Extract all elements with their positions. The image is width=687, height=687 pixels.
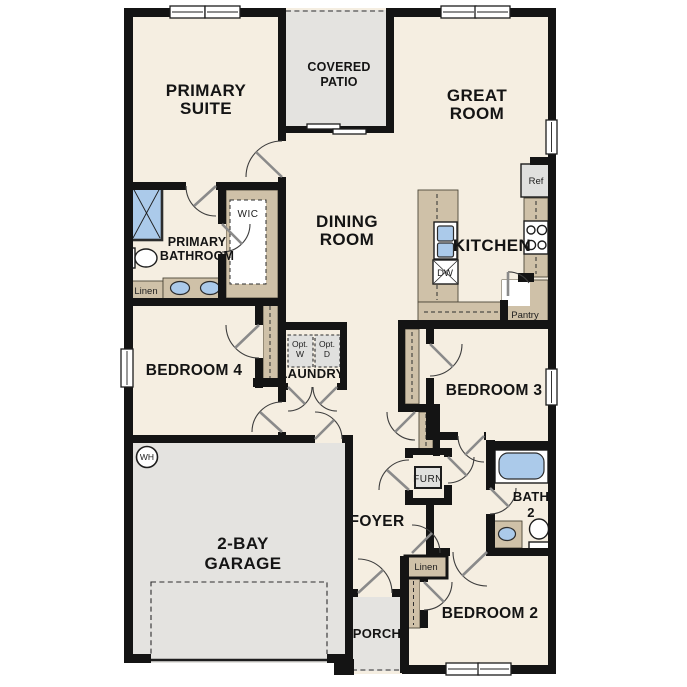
primary-toilet-bowl	[135, 249, 157, 267]
room-label-great-room-2: ROOM	[450, 104, 504, 123]
fixture-label-furnace: FURN	[413, 474, 443, 485]
room-label-covered-patio: COVERED	[307, 60, 370, 74]
room-label-garage-2: GARAGE	[204, 554, 281, 573]
burner-1	[527, 226, 535, 234]
floor-plan-drawing: PRIMARY SUITE COVERED PATIO GREAT ROOM D…	[0, 0, 687, 687]
fixture-label-opt-washer-2: W	[296, 349, 304, 359]
fixture-label-linen-hall: Linen	[414, 562, 437, 573]
wall-segment	[548, 8, 556, 674]
wall-segment	[486, 441, 556, 450]
room-label-foyer: FOYER	[350, 513, 405, 530]
room-label-primary-suite-2: SUITE	[180, 99, 232, 118]
room-label-dining-room: DINING	[316, 212, 378, 231]
wall-segment	[500, 300, 508, 322]
bath2-toilet-bowl	[530, 519, 549, 539]
primary-sink-right	[201, 282, 220, 295]
wall-segment	[124, 8, 133, 663]
opening	[426, 344, 434, 378]
room-label-bedroom3: BEDROOM 3	[446, 382, 543, 399]
fixture-label-linen-primary: Linen	[134, 286, 157, 297]
fixture-label-water-heater: WH	[140, 452, 154, 462]
fixture-label-opt-washer: Opt.	[292, 339, 308, 349]
burner-4	[538, 241, 546, 249]
room-label-garage: 2-BAY	[217, 534, 269, 553]
burner-2	[537, 225, 546, 234]
room-label-wic: WIC	[238, 209, 259, 220]
primary-sink-left	[171, 282, 190, 295]
opening	[255, 325, 263, 358]
room-label-primary-suite: PRIMARY	[166, 81, 247, 100]
room-label-laundry: LAUNDRY	[279, 366, 344, 381]
patio-slider-panel-2	[333, 129, 366, 134]
wall-segment	[334, 659, 354, 675]
room-label-bedroom4: BEDROOM 4	[146, 362, 243, 379]
fixture-label-dishwasher: DW	[437, 268, 453, 279]
fixture-label-opt-dryer: Opt.	[319, 339, 335, 349]
patio-slider-panel-1	[307, 124, 340, 129]
wall-segment	[386, 8, 394, 133]
wall-segment	[398, 320, 556, 329]
wall-segment	[412, 404, 419, 412]
wall-segment	[530, 157, 556, 165]
bathtub	[499, 453, 544, 479]
wall-segment	[426, 548, 556, 556]
fixture-label-opt-dryer-2: D	[324, 349, 330, 359]
fixture-label-refrigerator: Ref	[529, 176, 544, 187]
room-label-dining-room-2: ROOM	[320, 230, 374, 249]
room-label-porch: PORCH	[353, 626, 401, 641]
room-label-bedroom2: BEDROOM 2	[442, 605, 539, 622]
wall-segment	[278, 322, 347, 330]
opening	[278, 141, 286, 177]
kitchen-sink-bowl-bottom	[438, 243, 454, 257]
wall-segment	[426, 498, 434, 556]
garage-door-opening	[151, 654, 327, 663]
opening	[450, 548, 486, 556]
opening	[405, 458, 413, 490]
opening	[278, 402, 286, 432]
room-label-kitchen: KITCHEN	[453, 236, 531, 255]
kitchen-sink-bowl-top	[438, 226, 454, 241]
room-label-bath2: BATH	[513, 489, 549, 504]
opening	[358, 589, 392, 597]
room-label-great-room: GREAT	[447, 86, 507, 105]
room-label-covered-patio-2: PATIO	[320, 75, 357, 89]
wall-segment	[400, 556, 409, 673]
opening	[288, 383, 337, 390]
room-label-bath2-2: 2	[527, 505, 535, 520]
floor-plan-page: PRIMARY SUITE COVERED PATIO GREAT ROOM D…	[0, 0, 687, 687]
wall-segment	[398, 320, 405, 412]
room-label-primary-bathroom: PRIMARY	[168, 235, 227, 249]
room-label-primary-bathroom-2: BATHROOM	[160, 249, 234, 263]
bath2-sink	[499, 528, 516, 541]
fixture-label-pantry: Pantry	[511, 310, 539, 321]
